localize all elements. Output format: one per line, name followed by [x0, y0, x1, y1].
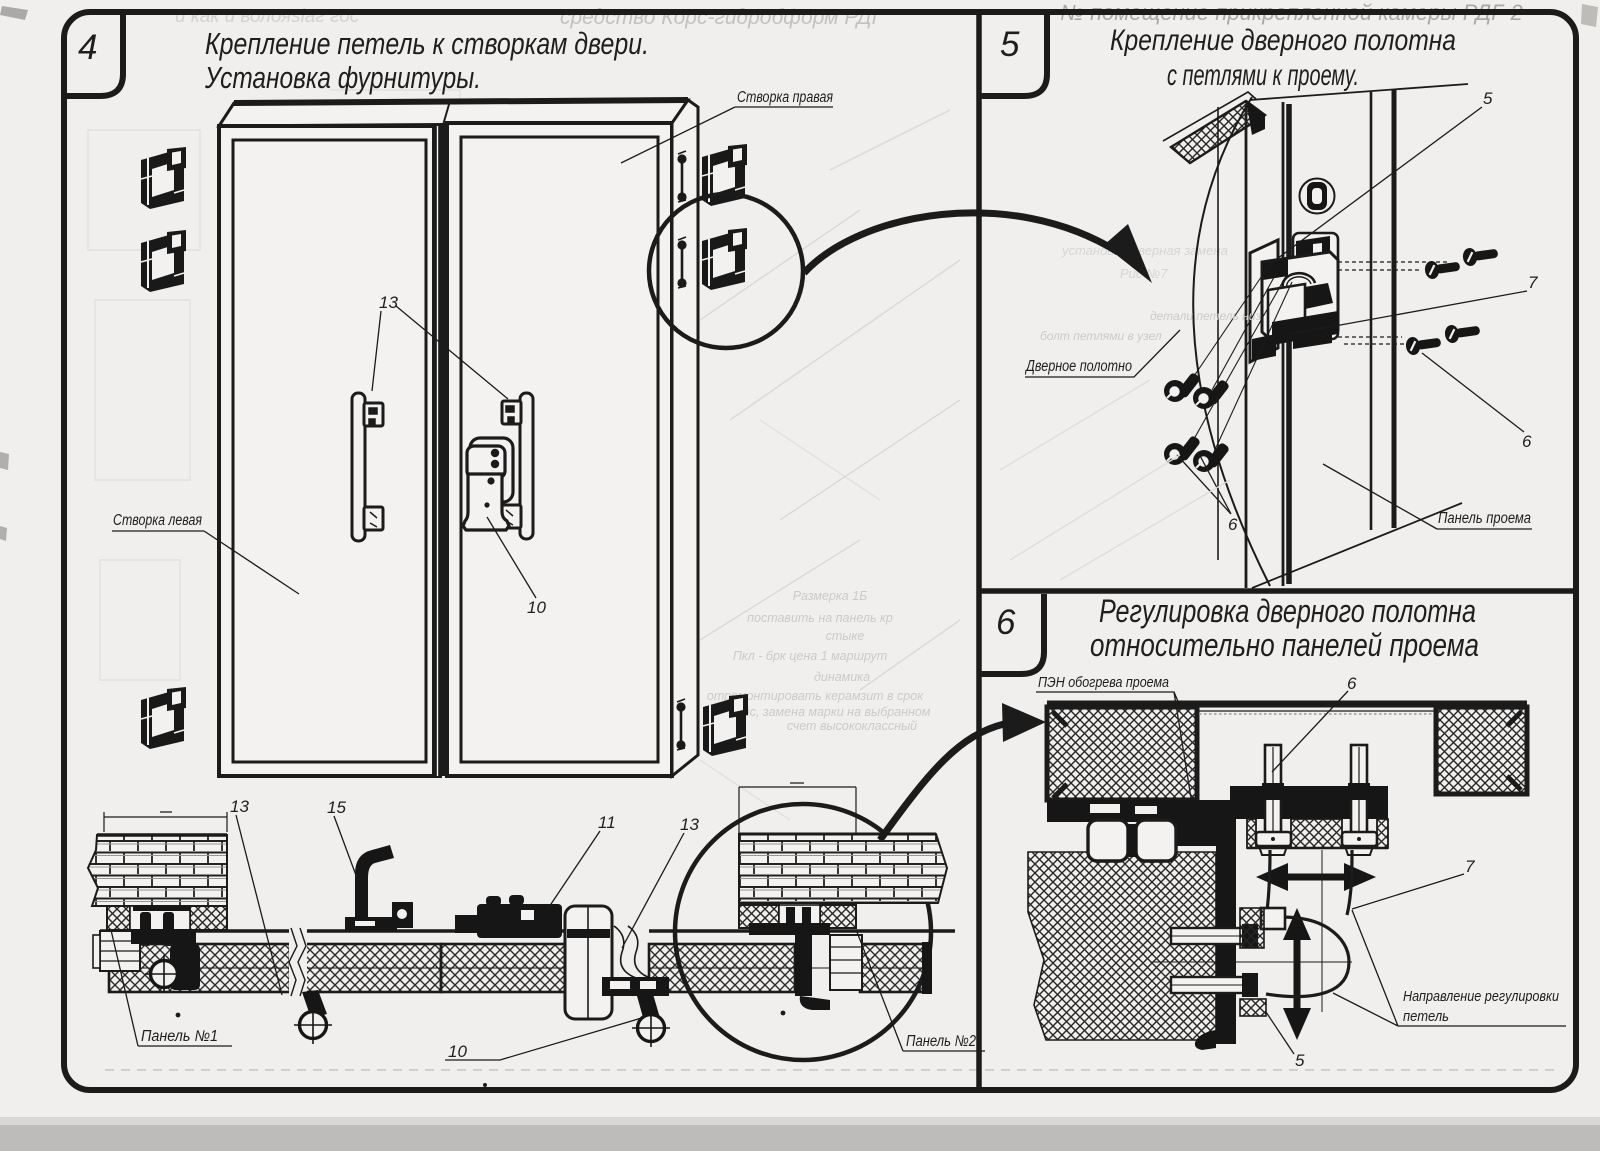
svg-text:6: 6 [1347, 674, 1357, 693]
svg-text:счет высококлассный: счет высококлассный [787, 719, 917, 733]
svg-text:Панель №2: Панель №2 [906, 1033, 976, 1050]
svg-text:Крепление петель к створкам дв: Крепление петель к створкам двери. [205, 26, 649, 61]
svg-text:детали петель низ: детали петель низ [1150, 309, 1261, 323]
svg-text:6: 6 [1228, 515, 1238, 534]
svg-text:6: 6 [996, 603, 1016, 642]
svg-text:5: 5 [1295, 1051, 1305, 1070]
svg-text:поставить на панель кр: поставить на панель кр [747, 611, 893, 625]
svg-text:7: 7 [1465, 857, 1475, 876]
svg-text:петель: петель [1403, 1008, 1449, 1025]
svg-text:5: 5 [1483, 89, 1493, 108]
svg-text:Дверное полотно: Дверное полотно [1024, 358, 1132, 375]
svg-text:с петлями к проему.: с петлями к проему. [1167, 59, 1359, 92]
svg-text:10: 10 [527, 598, 546, 617]
svg-text:Размерка 1Б: Размерка 1Б [793, 589, 868, 603]
svg-text:вейс, замена марки на выбранно: вейс, замена марки на выбранном [730, 705, 931, 719]
svg-text:Створка правая: Створка правая [737, 89, 833, 106]
svg-text:Крепление дверного полотна: Крепление дверного полотна [1110, 24, 1456, 57]
svg-text:13: 13 [379, 293, 398, 312]
svg-text:болт петлями в узел: болт петлями в узел [1040, 329, 1162, 343]
svg-text:Регулировка дверного полотна: Регулировка дверного полотна [1099, 593, 1476, 629]
svg-text:5: 5 [1000, 25, 1020, 64]
svg-text:Установка фурнитуры.: Установка фурнитуры. [204, 60, 481, 95]
svg-text:7: 7 [1528, 273, 1538, 292]
svg-text:Панель №1: Панель №1 [141, 1028, 218, 1045]
svg-text:Пкл - брк цена 1 маршрут: Пкл - брк цена 1 маршрут [733, 649, 887, 663]
svg-text:6: 6 [1522, 432, 1532, 451]
svg-text:11: 11 [598, 813, 616, 832]
svg-text:10: 10 [448, 1042, 467, 1061]
svg-text:13: 13 [680, 815, 699, 834]
svg-text:Панель проема: Панель проема [1438, 510, 1531, 527]
svg-text:Направление регулировки: Направление регулировки [1403, 988, 1560, 1005]
svg-text:стыке: стыке [826, 629, 865, 643]
svg-text:ПЭН обогрева проема: ПЭН обогрева проема [1038, 674, 1169, 691]
svg-text:динамика: динамика [814, 670, 870, 684]
svg-text:4: 4 [78, 28, 97, 67]
svg-text:15: 15 [327, 798, 346, 817]
svg-text:13: 13 [230, 797, 249, 816]
svg-text:установка дверная замена: установка дверная замена [1061, 243, 1228, 258]
svg-text:Створка левая: Створка левая [113, 512, 202, 529]
svg-text:относительно панелей проема: относительно панелей проема [1090, 627, 1479, 663]
